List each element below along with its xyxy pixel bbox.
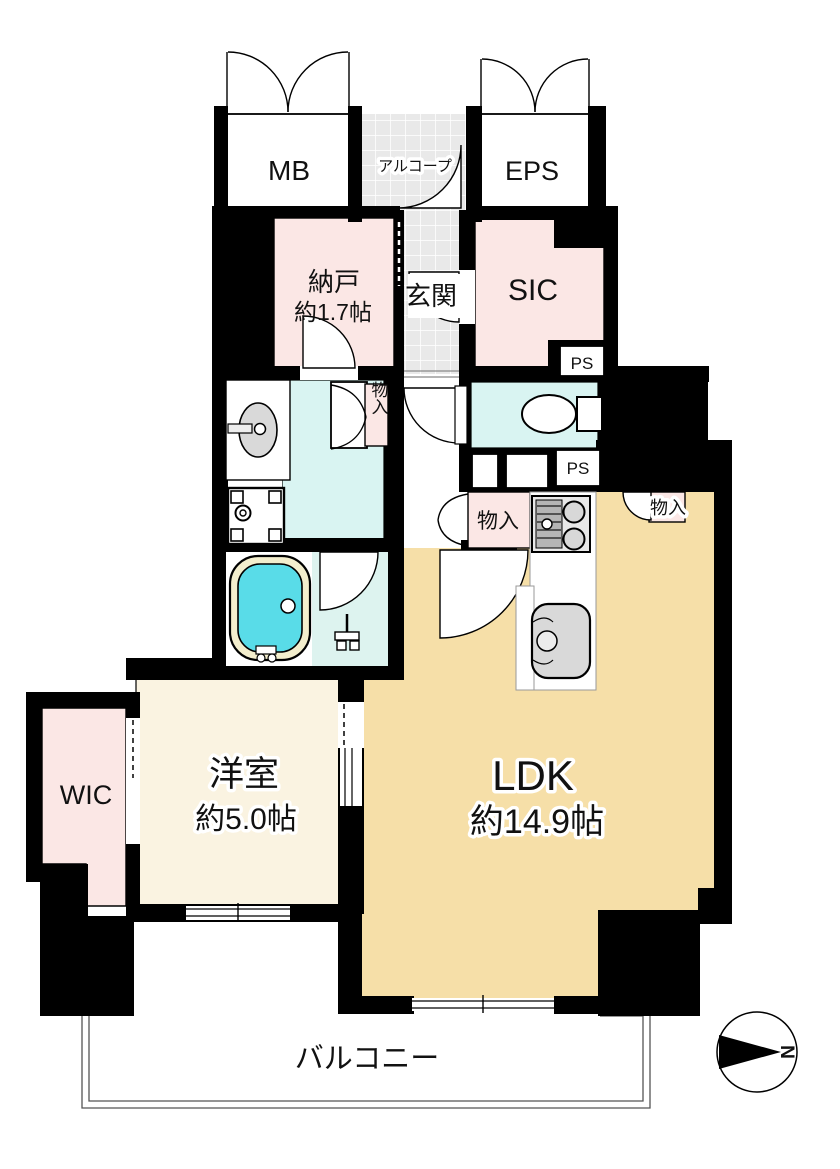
kitchen-sink-icon	[532, 604, 590, 678]
label-ps-upper: PS	[571, 354, 594, 373]
bathroom	[226, 552, 388, 666]
stove-icon	[532, 496, 590, 552]
washbasin-icon	[226, 380, 290, 480]
label-closet-b: 物入	[477, 510, 519, 533]
partition-sliding-door	[340, 748, 362, 806]
compass-icon: N	[717, 1012, 797, 1092]
label-closet-c: 物入	[650, 498, 686, 518]
label-ldk: LDK	[492, 752, 574, 799]
label-eps: EPS	[505, 156, 559, 186]
bathtub-icon	[230, 556, 310, 662]
floor-plan-page: MB アルコープ EPS 納戸 約1.7帖 玄関 SIC PS PS 物入 物入…	[0, 0, 840, 1169]
label-wic: WIC	[60, 780, 112, 810]
label-genkan: 玄関	[405, 281, 457, 311]
label-sic: SIC	[508, 274, 558, 307]
label-western: 洋室	[209, 755, 279, 794]
label-closet-a: 物入	[369, 381, 389, 415]
label-balcony: バルコニー	[295, 1043, 439, 1075]
washing-machine-pan-icon	[228, 488, 284, 544]
label-nando-size: 約1.7帖	[294, 299, 372, 325]
pillar-left	[40, 916, 134, 1016]
toilet-icon	[522, 395, 602, 433]
label-nando: 納戸	[308, 267, 360, 297]
label-western-size: 約5.0帖	[195, 803, 297, 836]
floor-plan-drawing: MB アルコープ EPS 納戸 約1.7帖 玄関 SIC PS PS 物入 物入…	[0, 0, 840, 1169]
label-alcove: アルコープ	[378, 158, 452, 175]
label-ps-mid: PS	[567, 459, 590, 478]
compass-north-label: N	[776, 1045, 797, 1059]
pillar-right	[598, 910, 700, 1016]
label-mb: MB	[268, 155, 310, 186]
label-ldk-size: 約14.9帖	[470, 803, 604, 841]
